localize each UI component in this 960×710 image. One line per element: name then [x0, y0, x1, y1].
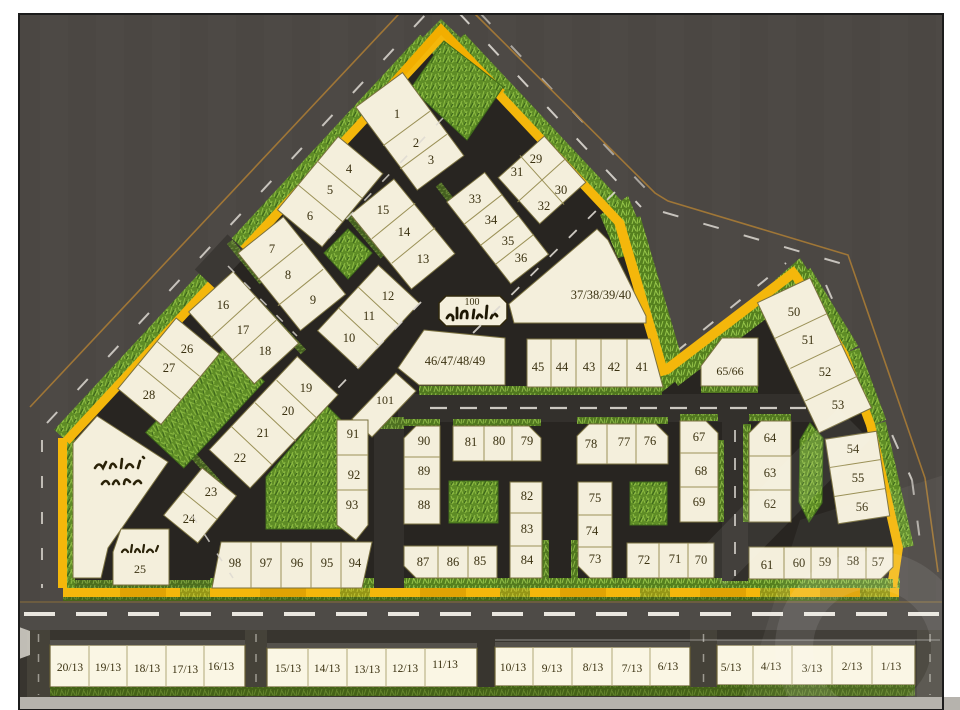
svg-text:41: 41: [636, 360, 649, 374]
svg-text:91: 91: [347, 427, 360, 441]
svg-text:45: 45: [532, 360, 545, 374]
svg-text:15/13: 15/13: [275, 663, 301, 675]
svg-text:5: 5: [327, 183, 333, 197]
svg-text:6/13: 6/13: [658, 661, 679, 673]
svg-text:86: 86: [447, 555, 460, 569]
svg-text:100: 100: [465, 297, 480, 308]
svg-text:92: 92: [348, 468, 361, 482]
svg-text:98: 98: [229, 556, 242, 570]
svg-text:50: 50: [788, 305, 801, 319]
svg-text:23: 23: [205, 485, 218, 499]
svg-text:72: 72: [638, 553, 651, 567]
svg-text:16: 16: [217, 298, 230, 312]
svg-text:1: 1: [394, 107, 400, 121]
svg-text:35: 35: [502, 234, 515, 248]
svg-text:43: 43: [583, 360, 596, 374]
svg-text:19: 19: [300, 381, 313, 395]
svg-text:77: 77: [618, 435, 631, 449]
svg-text:22: 22: [234, 451, 247, 465]
svg-text:10/13: 10/13: [500, 662, 526, 674]
svg-text:7/13: 7/13: [622, 663, 643, 675]
svg-text:90: 90: [418, 434, 431, 448]
svg-text:84: 84: [521, 553, 534, 567]
svg-text:78: 78: [585, 437, 598, 451]
svg-text:9/13: 9/13: [542, 663, 563, 675]
svg-text:51: 51: [802, 333, 815, 347]
svg-text:46/47/48/49: 46/47/48/49: [425, 354, 485, 368]
svg-text:12/13: 12/13: [392, 663, 418, 675]
svg-text:33: 33: [469, 192, 482, 206]
svg-text:80: 80: [493, 434, 506, 448]
svg-text:16/13: 16/13: [208, 661, 234, 673]
svg-text:42: 42: [608, 360, 621, 374]
svg-text:25: 25: [134, 562, 146, 576]
svg-text:3: 3: [428, 153, 434, 167]
svg-text:93: 93: [346, 498, 359, 512]
svg-text:13: 13: [417, 252, 430, 266]
svg-text:32: 32: [538, 199, 551, 213]
svg-text:89: 89: [418, 464, 431, 478]
svg-text:4: 4: [346, 162, 353, 176]
svg-text:101: 101: [376, 393, 394, 407]
svg-text:20: 20: [282, 404, 295, 418]
svg-text:27: 27: [163, 361, 176, 375]
svg-text:81: 81: [465, 435, 478, 449]
svg-text:82: 82: [521, 489, 534, 503]
svg-text:13/13: 13/13: [354, 664, 380, 676]
svg-text:88: 88: [418, 498, 431, 512]
svg-text:34: 34: [485, 213, 498, 227]
svg-text:30: 30: [555, 183, 568, 197]
svg-text:52: 52: [819, 365, 832, 379]
svg-text:5/13: 5/13: [721, 662, 742, 674]
svg-text:17: 17: [237, 323, 250, 337]
svg-text:68: 68: [695, 464, 708, 478]
svg-text:37/38/39/40: 37/38/39/40: [571, 288, 631, 302]
svg-text:65/66: 65/66: [716, 364, 743, 378]
svg-text:26: 26: [181, 342, 194, 356]
svg-text:31: 31: [511, 165, 524, 179]
svg-text:79: 79: [521, 434, 534, 448]
svg-text:11: 11: [363, 309, 375, 323]
svg-text:28: 28: [143, 388, 156, 402]
svg-text:29: 29: [530, 152, 543, 166]
svg-text:11/13: 11/13: [432, 659, 458, 671]
svg-text:61: 61: [761, 558, 774, 572]
svg-text:15: 15: [377, 203, 390, 217]
svg-text:83: 83: [521, 522, 534, 536]
svg-text:74: 74: [586, 524, 599, 538]
svg-text:95: 95: [321, 556, 334, 570]
svg-text:12: 12: [382, 289, 395, 303]
svg-text:44: 44: [556, 360, 569, 374]
svg-text:6: 6: [307, 209, 313, 223]
svg-text:76: 76: [644, 434, 657, 448]
svg-text:96: 96: [291, 556, 304, 570]
svg-text:8/13: 8/13: [583, 662, 604, 674]
svg-text:7: 7: [269, 242, 275, 256]
svg-text:85: 85: [474, 554, 487, 568]
svg-text:97: 97: [260, 556, 273, 570]
svg-text:69: 69: [693, 495, 706, 509]
svg-text:55: 55: [852, 471, 865, 485]
svg-text:9: 9: [310, 293, 316, 307]
svg-text:64: 64: [764, 431, 777, 445]
svg-text:73: 73: [589, 552, 602, 566]
svg-text:19/13: 19/13: [95, 662, 121, 674]
svg-text:94: 94: [349, 556, 362, 570]
svg-text:21: 21: [257, 426, 270, 440]
svg-text:17/13: 17/13: [172, 664, 198, 676]
svg-text:14/13: 14/13: [314, 663, 340, 675]
svg-text:71: 71: [669, 552, 682, 566]
svg-text:36: 36: [515, 251, 528, 265]
svg-text:8: 8: [285, 268, 291, 282]
svg-text:87: 87: [417, 555, 430, 569]
svg-text:67: 67: [693, 430, 706, 444]
svg-text:10: 10: [343, 331, 356, 345]
svg-text:75: 75: [589, 491, 602, 505]
svg-text:18: 18: [259, 344, 272, 358]
svg-text:20/13: 20/13: [57, 662, 83, 674]
svg-text:18/13: 18/13: [134, 663, 160, 675]
svg-text:14: 14: [398, 225, 411, 239]
